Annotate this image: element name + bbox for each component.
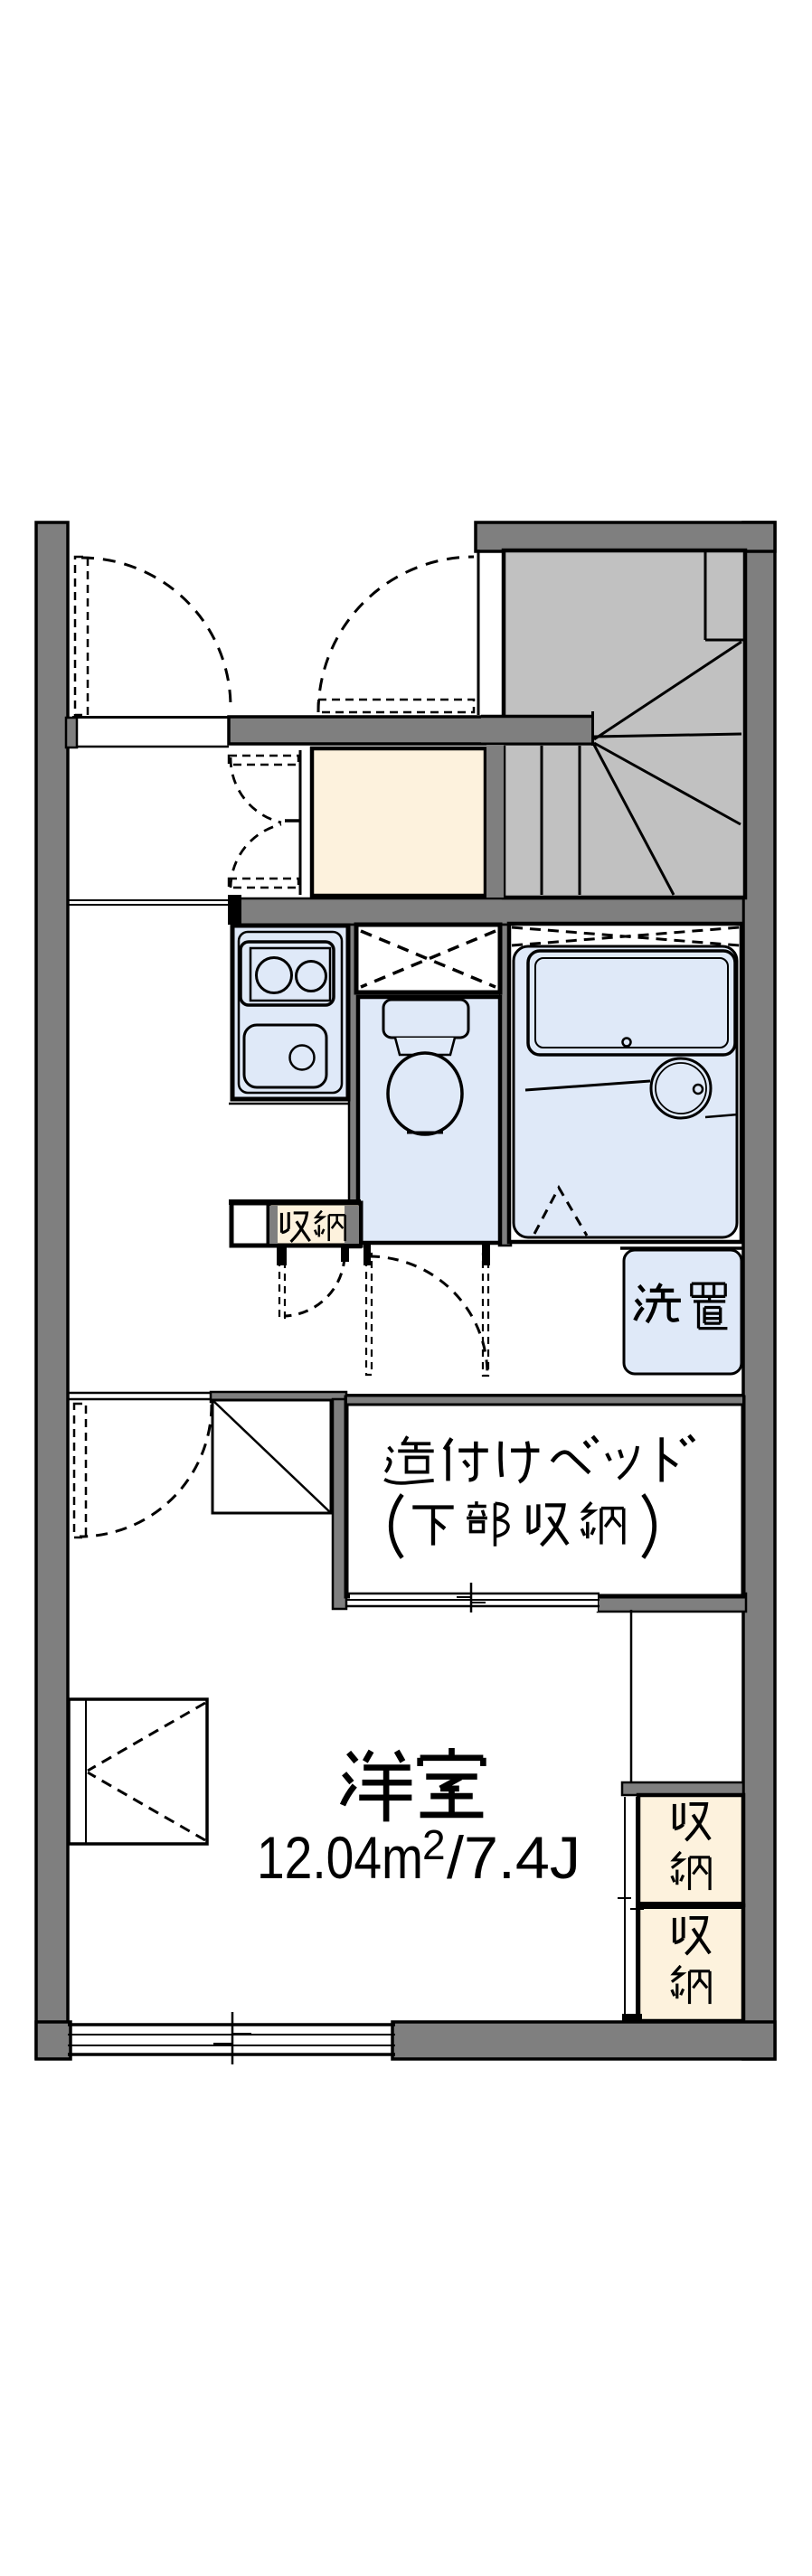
svg-text:/7.4J: /7.4J xyxy=(447,1824,581,1891)
svg-text:12.04m: 12.04m xyxy=(257,1824,423,1891)
svg-text:2: 2 xyxy=(422,1821,446,1868)
